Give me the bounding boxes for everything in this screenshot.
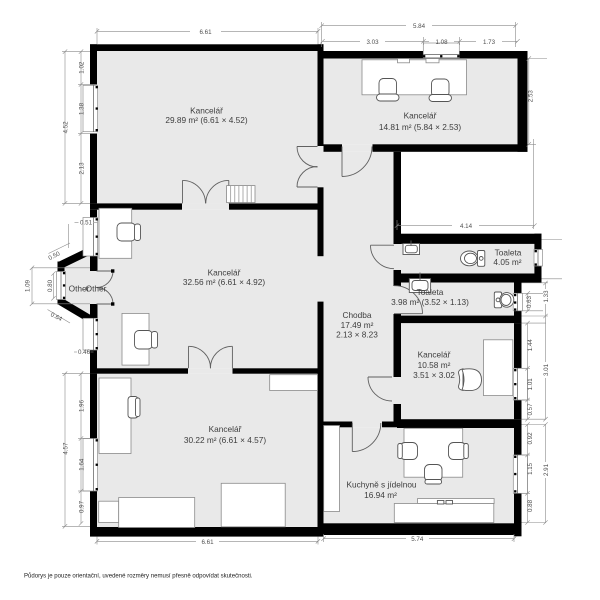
svg-text:2.13: 2.13	[79, 162, 86, 175]
svg-text:1.64: 1.64	[79, 458, 86, 471]
svg-text:30.22 m² (6.61 × 4.57): 30.22 m² (6.61 × 4.57)	[184, 435, 267, 445]
svg-text:10.58 m²: 10.58 m²	[418, 360, 451, 370]
svg-text:4.05 m²: 4.05 m²	[493, 257, 521, 267]
svg-text:3.51 × 3.02: 3.51 × 3.02	[413, 370, 455, 380]
svg-text:0.97: 0.97	[79, 500, 86, 513]
svg-text:14.81 m² (5.84 × 2.53): 14.81 m² (5.84 × 2.53)	[379, 122, 462, 132]
svg-text:0.88: 0.88	[527, 499, 534, 512]
svg-text:Chodba: Chodba	[342, 310, 371, 320]
svg-text:0.51: 0.51	[80, 220, 93, 227]
svg-text:2.53: 2.53	[528, 90, 535, 103]
svg-text:6.61: 6.61	[199, 29, 212, 36]
svg-text:Kancelář: Kancelář	[418, 350, 451, 360]
svg-text:32.56 m² (6.61 × 4.92): 32.56 m² (6.61 × 4.92)	[183, 277, 266, 287]
svg-text:0.63: 0.63	[526, 295, 533, 308]
svg-text:17.49 m²: 17.49 m²	[341, 320, 374, 330]
svg-text:0.46: 0.46	[78, 349, 91, 356]
svg-text:1.33: 1.33	[543, 290, 550, 303]
svg-text:Kuchyně s jídelnou: Kuchyně s jídelnou	[346, 479, 416, 489]
svg-text:5.84: 5.84	[413, 23, 426, 30]
svg-text:1.09: 1.09	[25, 279, 32, 292]
svg-text:Kancelář: Kancelář	[209, 424, 242, 434]
svg-text:1.44: 1.44	[527, 339, 534, 352]
svg-text:3.01: 3.01	[543, 363, 550, 376]
svg-text:Other: Other	[86, 284, 107, 294]
svg-text:29.89 m² (6.61 × 4.52): 29.89 m² (6.61 × 4.52)	[165, 115, 248, 125]
svg-text:16.94 m²: 16.94 m²	[364, 490, 397, 500]
svg-text:0.80: 0.80	[47, 279, 54, 292]
svg-text:1.15: 1.15	[527, 462, 534, 475]
svg-text:1.02: 1.02	[79, 61, 86, 74]
svg-text:2.13 × 8.23: 2.13 × 8.23	[336, 329, 378, 339]
svg-text:1.73: 1.73	[483, 39, 496, 46]
svg-text:1.08: 1.08	[435, 39, 448, 46]
svg-text:4.14: 4.14	[460, 223, 473, 230]
svg-text:Toaleta: Toaleta	[417, 287, 444, 297]
svg-text:4.52: 4.52	[63, 121, 70, 134]
svg-text:0.92: 0.92	[527, 432, 534, 445]
svg-text:Kancelář: Kancelář	[190, 106, 223, 116]
svg-text:Půdorys je pouze orientační, u: Půdorys je pouze orientační, uvedené roz…	[24, 573, 253, 580]
svg-text:2.91: 2.91	[543, 463, 550, 476]
svg-text:0.57: 0.57	[527, 403, 534, 416]
svg-text:1.38: 1.38	[79, 102, 86, 115]
svg-text:5.74: 5.74	[411, 536, 424, 543]
svg-text:6.61: 6.61	[201, 539, 214, 546]
svg-text:1.96: 1.96	[79, 399, 86, 412]
svg-text:3.03: 3.03	[366, 39, 379, 46]
svg-text:Kancelář: Kancelář	[404, 110, 437, 120]
svg-text:1.01: 1.01	[527, 378, 534, 391]
svg-text:4.57: 4.57	[63, 442, 70, 455]
svg-text:Kancelář: Kancelář	[208, 268, 241, 278]
svg-text:3.98 m² (3.52 × 1.13): 3.98 m² (3.52 × 1.13)	[391, 297, 469, 307]
svg-text:Toaleta: Toaleta	[495, 247, 522, 257]
